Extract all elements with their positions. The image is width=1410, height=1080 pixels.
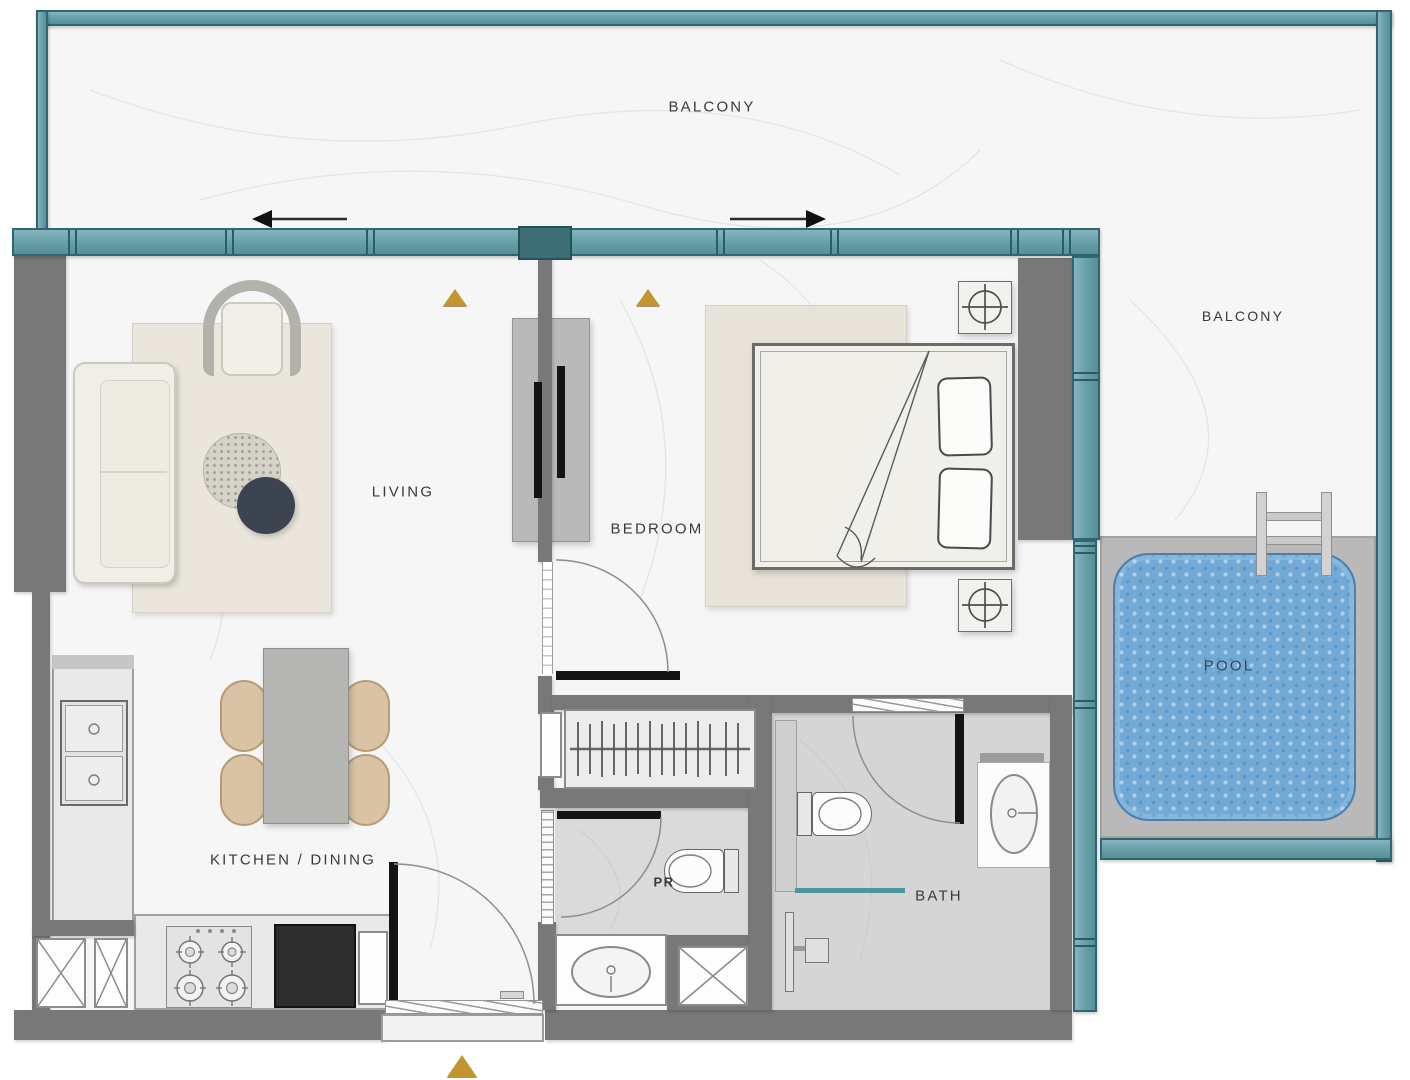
entry-direction-triangle-icon <box>447 1055 477 1077</box>
direction-triangle-icon <box>443 289 467 306</box>
kitchen-dining-label: KITCHEN / DINING <box>210 852 376 869</box>
bedroom-label: BEDROOM <box>611 521 704 538</box>
direction-triangle-icon <box>636 289 660 306</box>
bath-label: BATH <box>915 888 963 905</box>
balcony-right-label: BALCONY <box>1202 308 1284 324</box>
pool-label: POOL <box>1204 658 1254 675</box>
plan-linework <box>0 0 1410 1080</box>
bath-door-arc <box>853 716 960 823</box>
bedroom-door-arc <box>556 560 668 672</box>
entry-door-arc <box>394 864 534 1004</box>
pr-door-arc <box>561 817 661 917</box>
balcony-top-label: BALCONY <box>668 99 755 116</box>
slide-arrow-left-icon <box>252 210 272 228</box>
living-label: LIVING <box>372 484 434 501</box>
slide-arrow-right-icon <box>806 210 826 228</box>
floor-plan: BALCONY BALCONY LIVING BEDROOM KITCHEN /… <box>0 0 1410 1080</box>
powder-room-label: PR <box>653 875 674 890</box>
